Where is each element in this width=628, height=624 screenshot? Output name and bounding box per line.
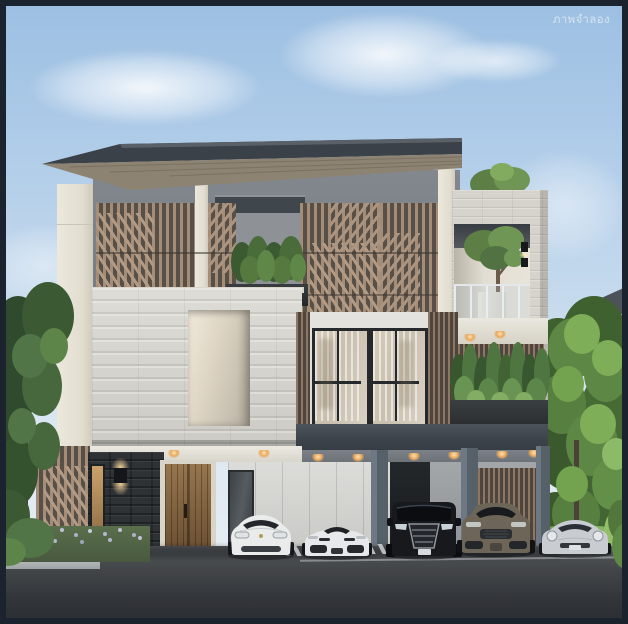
cloud [430, 40, 560, 82]
window-left [312, 328, 370, 430]
sconce-glow-up [112, 458, 129, 468]
downlight [258, 450, 270, 458]
downlight [312, 454, 324, 462]
stone-niche [188, 310, 250, 426]
downlight [352, 454, 364, 462]
slat-diagonal [380, 233, 420, 312]
floor-slab-band [296, 424, 548, 450]
door-handle [184, 504, 187, 518]
door-seam [187, 464, 189, 548]
car-white-sports [300, 510, 374, 560]
upper-planter-shrubs [228, 236, 310, 288]
roof [40, 134, 462, 194]
downlight [448, 452, 460, 460]
slat-diagonal [330, 203, 380, 255]
car-white-sedan [226, 504, 296, 560]
car-black-van [383, 496, 465, 560]
downlight [494, 331, 506, 339]
cloud [30, 50, 260, 125]
car-bronze-suv [455, 496, 537, 558]
rendering-frame: ภาพจำลอง [0, 0, 628, 624]
sconce-glow [519, 252, 530, 258]
downlight [408, 453, 420, 461]
window-mullion [395, 331, 397, 421]
window-mullion [337, 331, 339, 421]
downlight [496, 451, 508, 459]
window-right [370, 328, 428, 430]
sconce-glow-down [112, 483, 129, 495]
foreground-foliage [606, 500, 628, 568]
watermark-text: ภาพจำลอง [553, 11, 610, 29]
downlight [168, 450, 180, 458]
wall-sconce [114, 468, 127, 483]
car-silver-coupe [536, 512, 614, 558]
tree-reflection [319, 339, 333, 409]
terrace-sconce [521, 242, 528, 252]
slat-strip [296, 312, 310, 432]
front-door [165, 464, 211, 548]
glass-railing [454, 284, 530, 320]
tree-left [0, 276, 88, 568]
tree-reflection [399, 341, 413, 407]
terrace-sconce [521, 258, 528, 267]
wall-seam [57, 224, 93, 225]
